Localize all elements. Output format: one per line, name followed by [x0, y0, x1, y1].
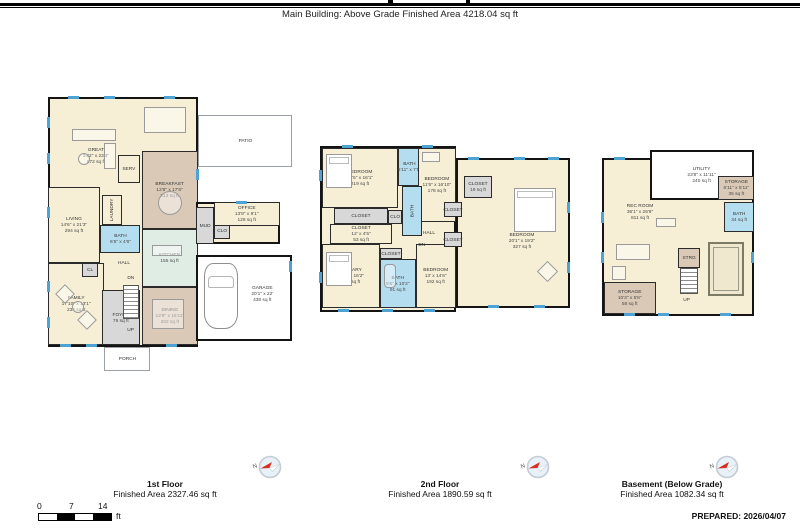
floor-area: Finished Area 1890.59 sq ft: [335, 489, 545, 499]
caption-basement: Basement (Below Grade) Finished Area 108…: [567, 479, 777, 499]
room-patio: PATIO: [198, 115, 292, 167]
window-marker: [164, 96, 175, 99]
hall-label: HALL: [416, 228, 442, 238]
window-marker: [68, 96, 79, 99]
room-closet-cl: CL: [82, 263, 98, 277]
room-closet-small: CLOSET: [380, 248, 402, 259]
prepared-date: PREPARED: 2026/04/07: [692, 511, 786, 521]
room-porch: PORCH: [104, 347, 150, 371]
desk-icon: [422, 152, 440, 162]
media-console-icon: [656, 218, 676, 227]
floor-area: Finished Area 1082.34 sq ft: [567, 489, 777, 499]
compass-north-label: N: [709, 463, 715, 470]
window-marker: [567, 262, 570, 273]
bed-icon: [326, 154, 352, 188]
window-marker: [47, 281, 50, 292]
sofa-icon: [616, 244, 650, 260]
window-marker: [86, 344, 97, 347]
window-marker: [601, 212, 604, 223]
room-bath-upper: BATH6'11" x 7'5": [398, 148, 420, 186]
window-marker: [47, 317, 50, 328]
window-marker: [624, 313, 635, 316]
stairs-icon: [680, 268, 698, 294]
room-kitchen: KITCHEN155 sq ft: [142, 229, 198, 287]
caption-1st-floor: 1st Floor Finished Area 2327.46 sq ft: [60, 479, 270, 499]
stairs-up-label: UP: [678, 295, 696, 304]
window-marker: [289, 261, 292, 272]
window-marker: [514, 157, 525, 160]
scale-ticks: 0 7 14: [38, 501, 148, 511]
floorplan-basement: UTILITY23'8" x 11'11"240 sq ft STORAGE6'…: [600, 148, 758, 320]
scale-tick: 7: [69, 501, 74, 511]
window-marker: [720, 313, 731, 316]
stairs-dn-label: DN: [414, 240, 430, 249]
hall-label: HALL: [108, 255, 140, 271]
floorplan-2nd-floor: BEDROOM13'5" x 16'1"219 sq ft BATH6'11" …: [318, 142, 572, 314]
window-marker: [47, 153, 50, 164]
room-name: PATIO: [238, 138, 252, 144]
window-marker: [47, 207, 50, 218]
coffee-table-icon: [78, 153, 90, 165]
pool-table-icon: [708, 242, 744, 296]
room-bedroom-3: BEDROOM13' x 14'6"192 sq ft: [416, 244, 456, 308]
window-marker: [658, 313, 669, 316]
room-closet-strip: CLOSET: [444, 232, 462, 247]
window-marker: [382, 309, 393, 312]
car-icon: [204, 263, 238, 329]
scale-tick: 14: [98, 501, 107, 511]
compass-icon: N: [710, 455, 739, 479]
room-bath-1st: BATH6'5" x 4'6": [100, 225, 140, 253]
room-storage-upper: STORAGE6'11" x 5'11"35 sq ft: [718, 176, 754, 200]
window-marker: [614, 157, 625, 160]
room-closet-walkin: CLOSET12' x 4'5"53 sq ft: [330, 224, 392, 244]
compass-north-label: N: [252, 463, 258, 470]
bed-icon: [326, 252, 352, 286]
room-garage-label: GARAGE20'1" x 22'438 sq ft: [238, 279, 286, 309]
window-marker: [338, 309, 349, 312]
scale-unit: ft: [116, 511, 121, 521]
room-laundry: LAUNDRY: [102, 195, 122, 225]
scale-bar: 0 7 14 ft: [38, 501, 148, 521]
sofa-icon: [104, 143, 116, 169]
dining-table-icon: [152, 299, 184, 329]
window-marker: [422, 145, 433, 148]
window-marker: [342, 145, 353, 148]
header-rule: [0, 3, 800, 8]
compass-rose: [715, 455, 739, 479]
stairs-icon: [123, 285, 139, 319]
breakfast-table-icon: [158, 191, 182, 215]
compass-icon: N: [521, 455, 550, 479]
sofa-icon: [72, 129, 116, 141]
floor-name: 1st Floor: [60, 479, 270, 489]
window-marker: [601, 252, 604, 263]
window-marker: [548, 157, 559, 160]
stairs-dn-label: DN: [122, 273, 140, 283]
room-bath-basement: BATH34 sq ft: [724, 202, 754, 232]
window-marker: [319, 170, 322, 181]
room-living: LIVING14'6" x 21'3"294 sq ft: [48, 187, 100, 263]
caption-2nd-floor: 2nd Floor Finished Area 1890.59 sq ft: [335, 479, 545, 499]
window-marker: [751, 252, 754, 263]
page-title: Main Building: Above Grade Finished Area…: [0, 9, 800, 20]
window-marker: [166, 344, 177, 347]
stairs-up-label: UP: [124, 325, 138, 335]
window-marker: [196, 169, 199, 180]
floor-name: 2nd Floor: [335, 479, 545, 489]
compass-rose: [526, 455, 550, 479]
window-marker: [104, 96, 115, 99]
floor-name: Basement (Below Grade): [567, 479, 777, 489]
window-marker: [534, 305, 545, 308]
room-closet-19: CLOSET19 sq ft: [464, 176, 492, 198]
room-mud: MUD: [196, 207, 214, 244]
floor-area: Finished Area 2327.46 sq ft: [60, 489, 270, 499]
room-strg: STRG: [678, 248, 700, 268]
room-clo: CLO: [388, 210, 402, 224]
window-marker: [236, 201, 247, 204]
kitchen-island-icon: [152, 245, 182, 256]
compass-rose: [258, 455, 282, 479]
spa-table-icon: [144, 107, 186, 133]
window-marker: [567, 202, 570, 213]
room-great-label: GREAT34'2" x 23'3"672 sq ft: [64, 139, 128, 173]
scale-bar-graphic: [38, 513, 112, 521]
side-table-icon: [72, 301, 84, 313]
scale-tick: 0: [37, 501, 42, 511]
window-marker: [47, 117, 50, 128]
compass-north-label: N: [520, 463, 526, 470]
room-closet-strip: CLOSET: [444, 202, 462, 217]
room-office: OFFICE13'8" x 9'1"128 sq ft: [214, 202, 280, 226]
armchair-icon: [612, 266, 626, 280]
bed-icon: [514, 188, 556, 232]
floorplan-1st-floor: PATIO LIVING14'6" x 21'3"294 sq ft FAMIL…: [46, 95, 296, 373]
floor-plan-sheet: Main Building: Above Grade Finished Area…: [0, 0, 800, 530]
window-marker: [424, 309, 435, 312]
window-marker: [488, 305, 499, 308]
compass-icon: N: [253, 455, 282, 479]
bathtub-icon: [384, 264, 396, 288]
window-marker: [60, 344, 71, 347]
room-closet-strip: CLOSET: [334, 208, 388, 224]
window-marker: [319, 272, 322, 283]
room-storage-lower: STORAGE10'3" x 5'8"58 sq ft: [604, 282, 656, 314]
window-marker: [468, 157, 479, 160]
room-breakfast: BREAKFAST12'8" x 17'6"213 sq ft: [142, 151, 198, 229]
